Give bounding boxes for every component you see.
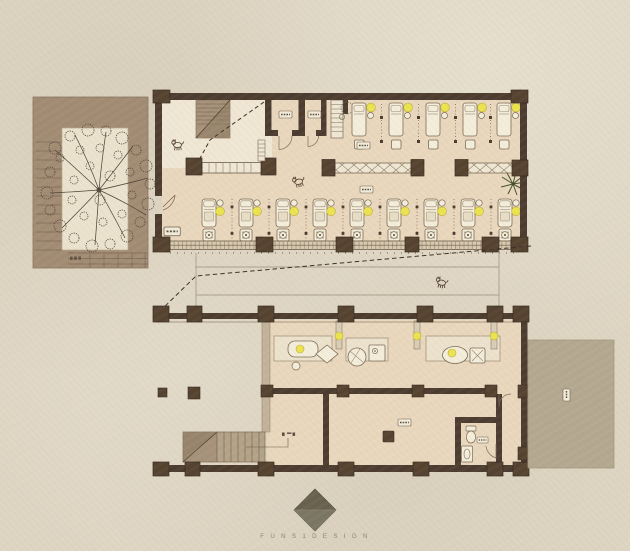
- studio-watermark: F U N S 1 D E S I G N: [260, 489, 370, 540]
- bath-stool: [292, 362, 300, 370]
- floor-plan-sheet: F U N S 1 D E S I G N: [0, 0, 630, 551]
- step-tag: [70, 257, 81, 260]
- floor-plan-drawing: F U N S 1 D E S I G N: [0, 0, 630, 551]
- tub-lamp: [296, 345, 304, 353]
- driveway-dashed-guide: [159, 246, 531, 312]
- round-tub: [348, 348, 366, 366]
- side-terrace: [528, 340, 614, 468]
- toilet-tag: [477, 437, 488, 443]
- lane-lines: [196, 250, 499, 313]
- driveway: [159, 246, 531, 313]
- lobby-staircase: [196, 100, 230, 138]
- terrace-tag: [563, 389, 570, 401]
- bed-row-tag: [357, 142, 370, 149]
- shower-tray: [369, 345, 385, 361]
- lounge-station-row: [202, 199, 520, 242]
- hall-tag: [398, 419, 411, 426]
- porch-column: [158, 388, 167, 397]
- oval-tub: [443, 347, 468, 364]
- west-low-wall: [262, 321, 270, 432]
- porch-column: [188, 387, 200, 399]
- wall-shoe-rack: [258, 140, 265, 161]
- tree-trunk: [96, 187, 101, 192]
- toilet-fixture: [466, 426, 476, 443]
- service-block: [383, 431, 394, 442]
- room2-tag: [308, 111, 321, 118]
- upper-building-treatment-hall: [153, 90, 528, 253]
- courtyard: [33, 97, 155, 268]
- hall-tag: [360, 186, 373, 193]
- water-bar-tag: [164, 227, 180, 236]
- cat-on-driveway-icon: [435, 277, 448, 289]
- room1-tag: [279, 111, 292, 118]
- wash-basin: [462, 446, 473, 462]
- lower-building-bath-house: [153, 306, 531, 476]
- wordmark-text: F U N S 1 D E S I G N: [260, 533, 370, 540]
- tree-planter: [62, 128, 128, 250]
- cross-tray: [470, 348, 485, 363]
- diamond-logo-icon: [294, 489, 336, 531]
